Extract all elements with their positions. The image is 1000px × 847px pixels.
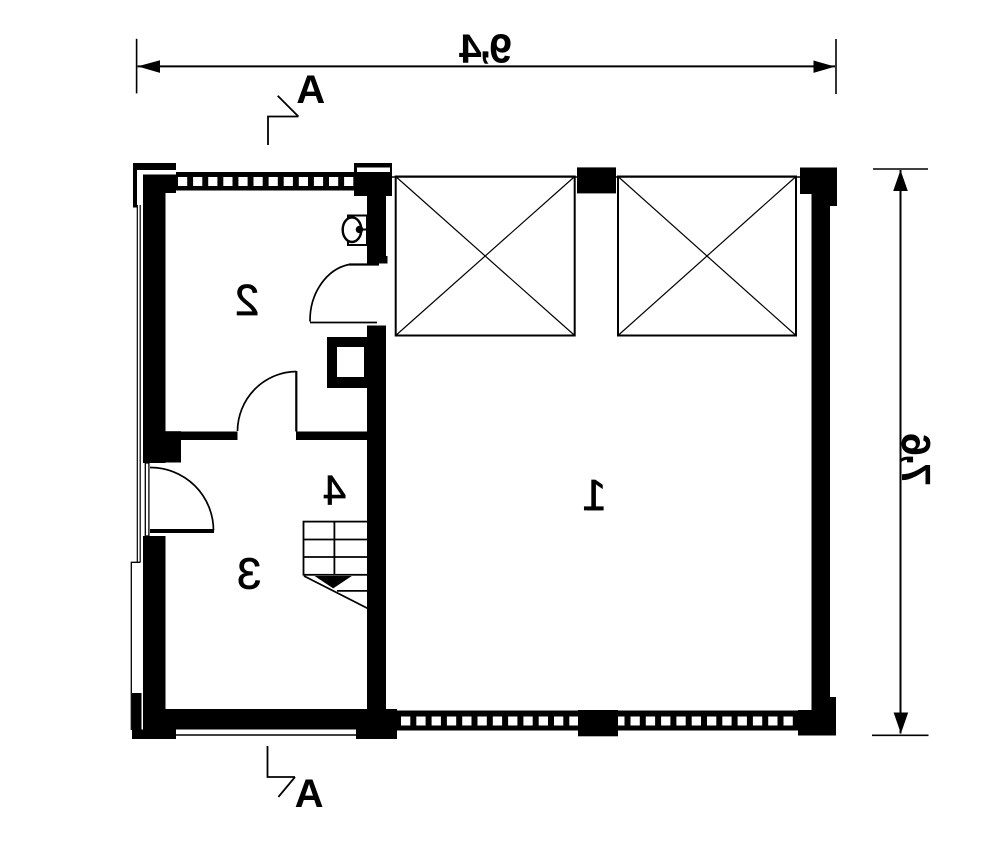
- svg-text:A: A: [296, 68, 325, 112]
- svg-text:A: A: [295, 772, 324, 816]
- svg-text:2: 2: [235, 276, 259, 325]
- svg-text:4: 4: [323, 467, 346, 514]
- svg-text:3: 3: [237, 550, 261, 599]
- svg-text:1: 1: [582, 471, 606, 520]
- svg-text:9,4: 9,4: [459, 21, 512, 72]
- svg-text:7,6: 7,6: [893, 434, 944, 486]
